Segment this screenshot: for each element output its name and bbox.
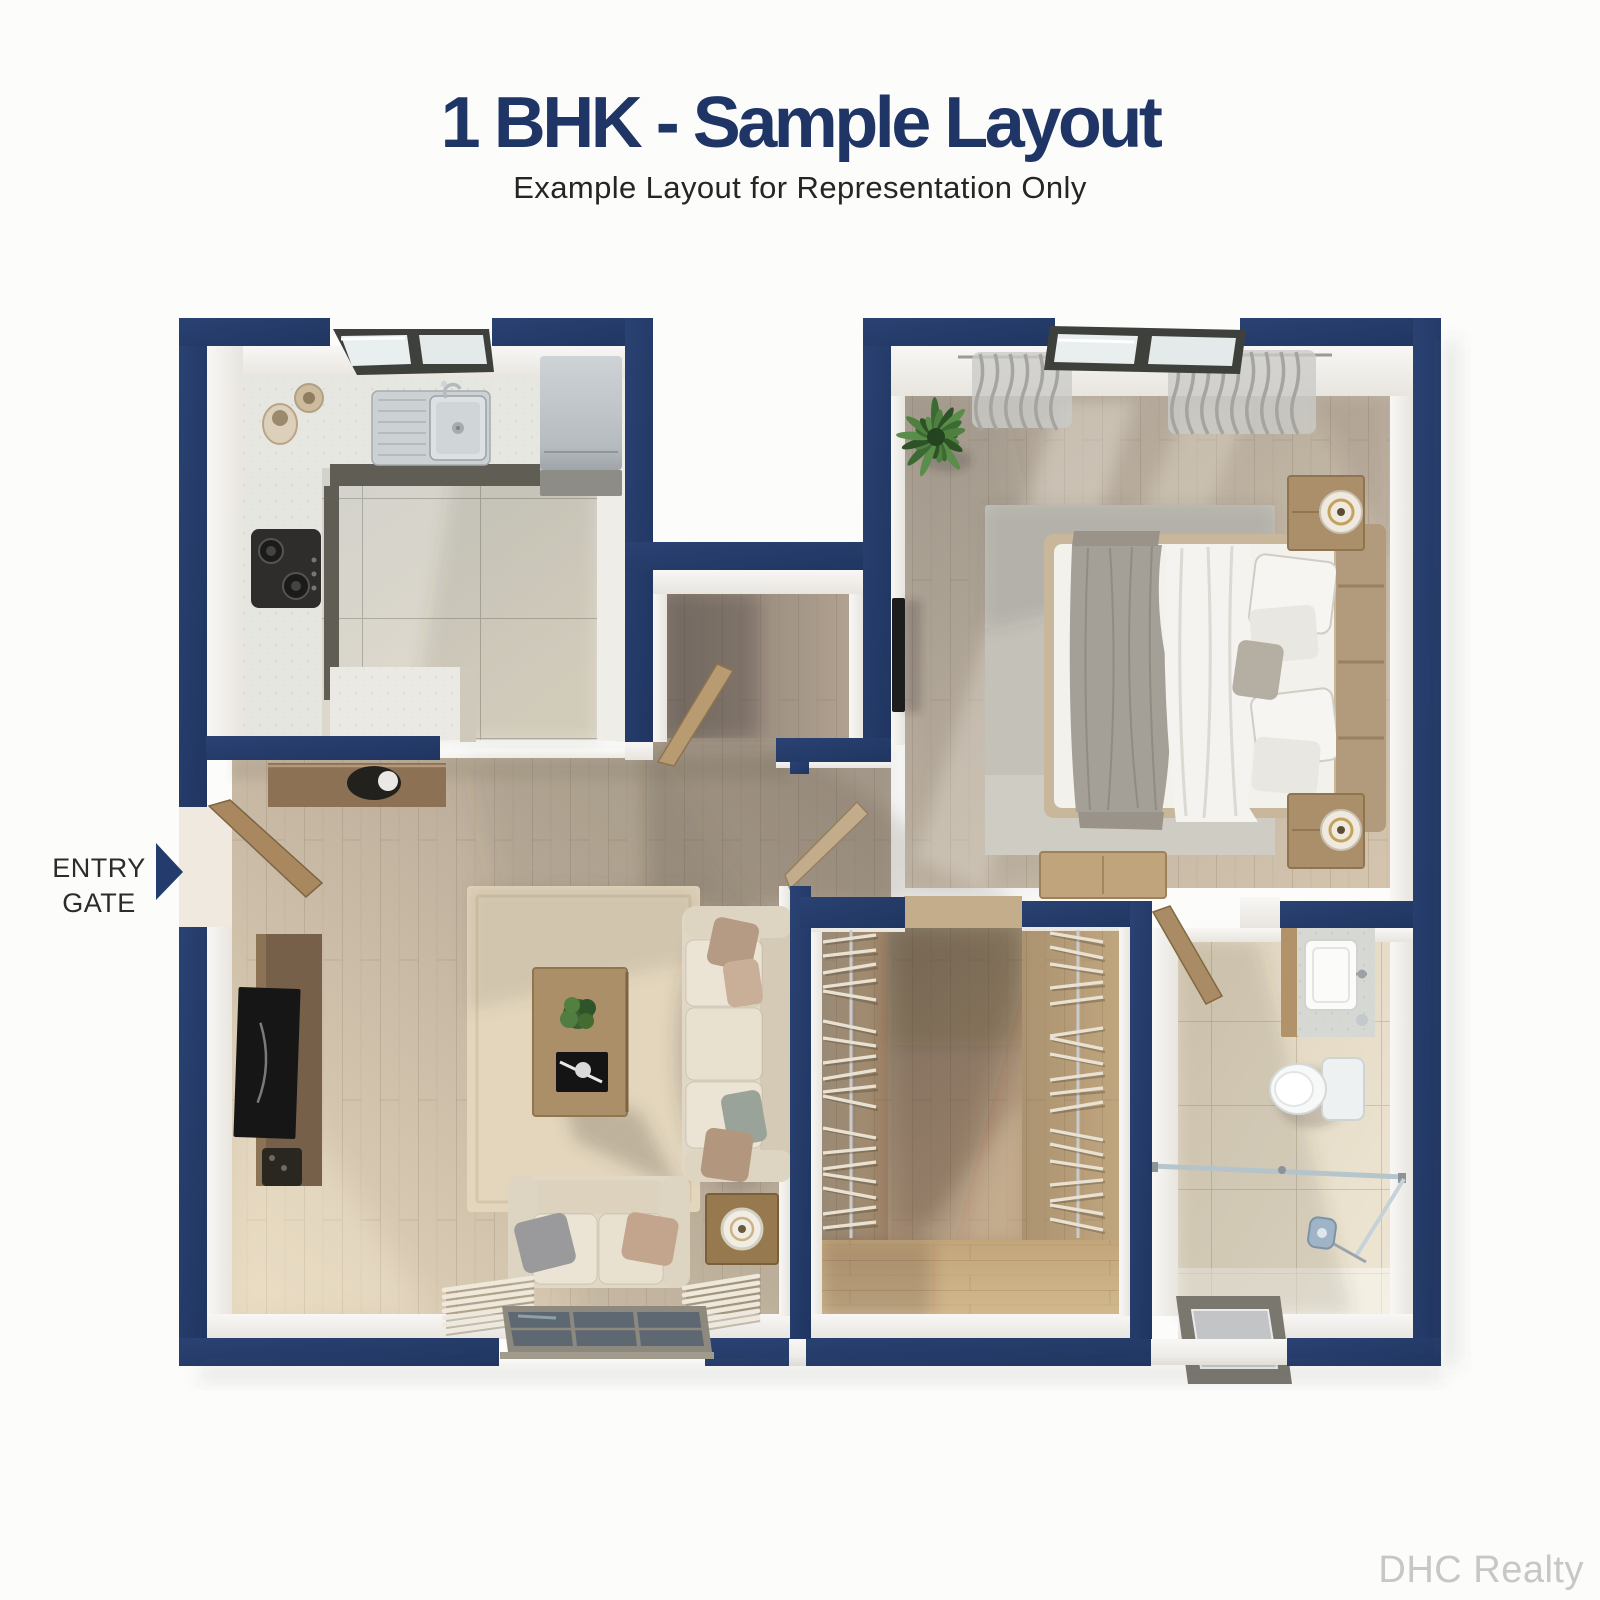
svg-text:Example Layout for Representat: Example Layout for Representation Only xyxy=(513,170,1087,205)
svg-text:ENTRY: ENTRY xyxy=(52,853,146,883)
svg-text:GATE: GATE xyxy=(62,888,136,918)
svg-text:1 BHK - Sample Layout: 1 BHK - Sample Layout xyxy=(441,83,1163,163)
svg-text:DHC Realty: DHC Realty xyxy=(1378,1549,1584,1591)
